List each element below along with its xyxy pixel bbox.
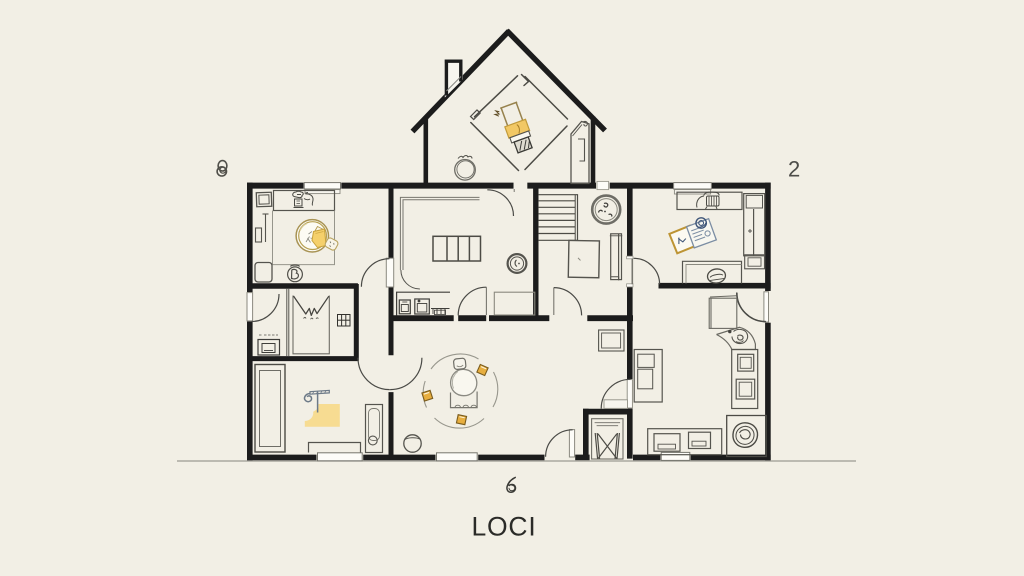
svg-text:2: 2 — [788, 157, 800, 182]
svg-text:LOCI: LOCI — [471, 512, 536, 542]
